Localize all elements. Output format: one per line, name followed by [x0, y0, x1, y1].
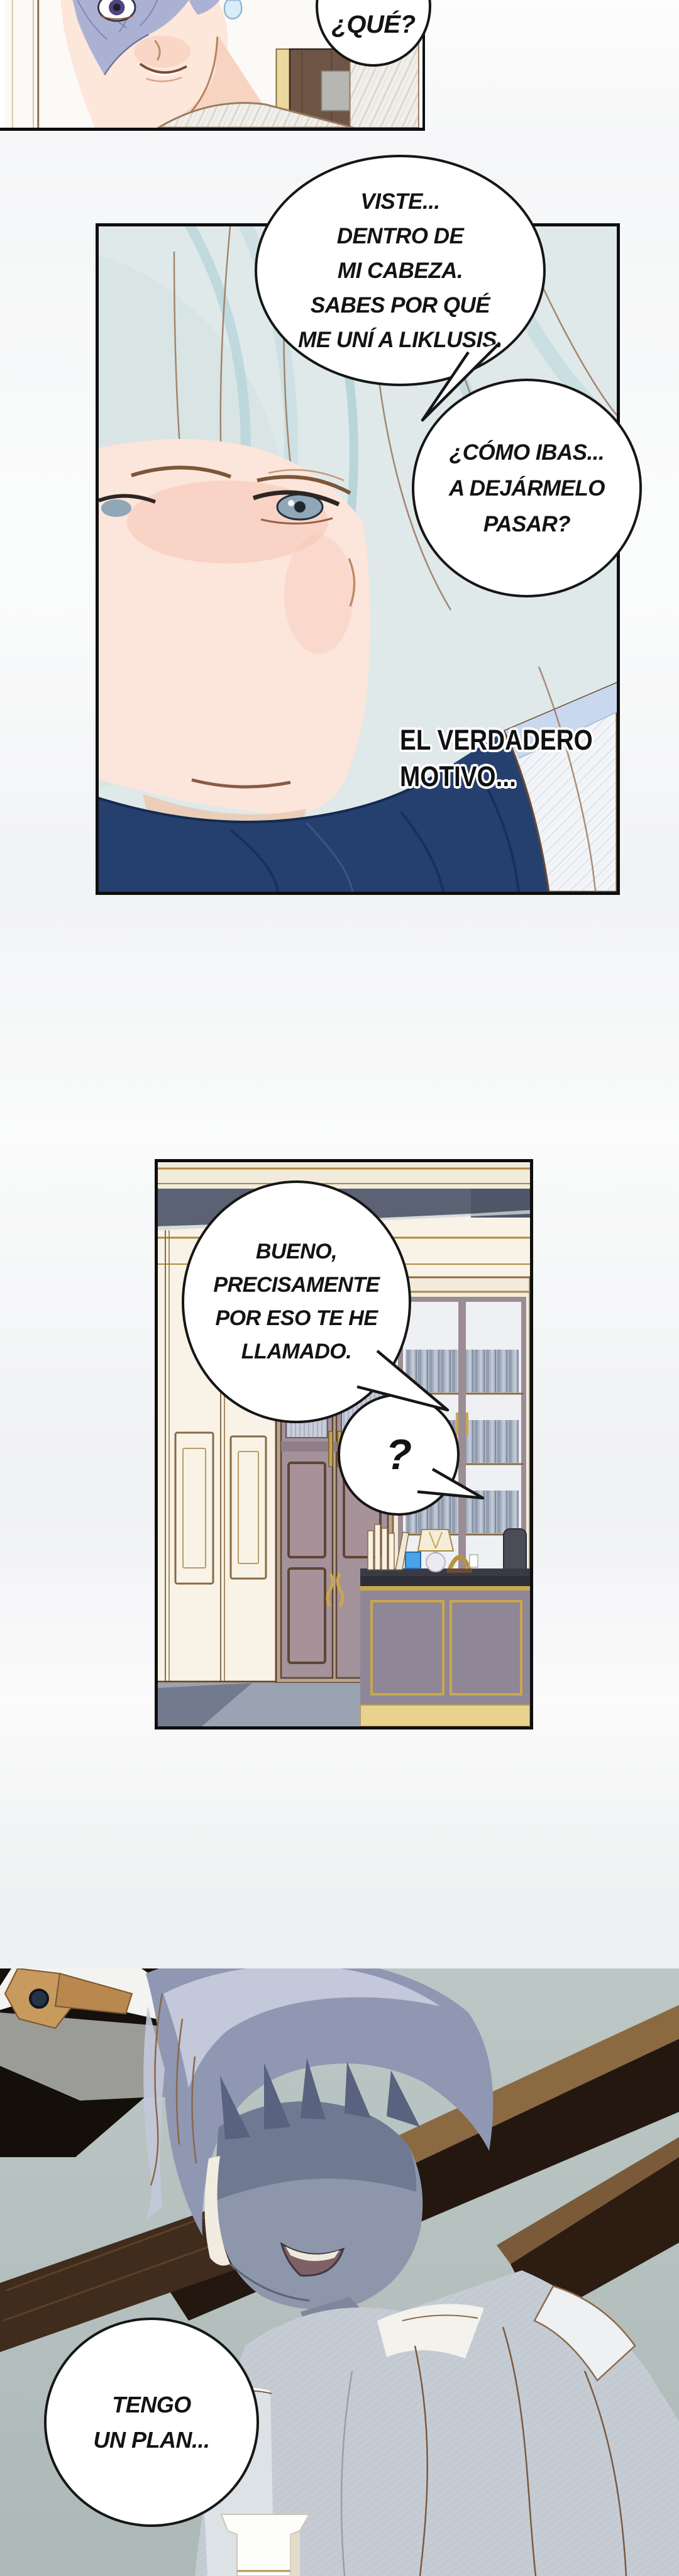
- caption-line: EL VERDADERO: [400, 722, 568, 758]
- speech-bubble-viste: VISTE... DENTRO DE MI CABEZA. SABES POR …: [255, 155, 546, 386]
- speech-bubble-plan: TENGO UN PLAN...: [44, 2318, 259, 2527]
- bubble-line: VISTE...: [360, 184, 439, 219]
- caption-line: MOTIVO...: [400, 758, 568, 795]
- speech-bubble-bueno: BUENO, PRECISAMENTE POR ESO TE HE LLAMAD…: [182, 1180, 411, 1423]
- bubble-line: UN PLAN...: [93, 2423, 209, 2458]
- bubble-line: ¿QUÉ?: [331, 10, 415, 39]
- bubble-line: SABES POR QUÉ: [311, 288, 490, 323]
- webtoon-page: ¿QUÉ? VISTE... DENTRO DE MI CABEZA. SABE…: [0, 0, 679, 2576]
- speech-bubble-question: ?: [338, 1394, 460, 1516]
- bubble-line: POR ESO TE HE: [216, 1302, 378, 1335]
- caption-el-verdadero-motivo: EL VERDADERO MOTIVO...: [400, 722, 568, 795]
- bubble-line: MI CABEZA.: [338, 253, 463, 288]
- bubble-line: TENGO: [112, 2387, 191, 2423]
- bubble-line: ME UNÍ A LIKLUSIS.: [298, 323, 502, 357]
- bubble-line: ?: [385, 1433, 411, 1476]
- bubble-line: PASAR?: [483, 506, 570, 542]
- bubble-line: LLAMADO.: [241, 1335, 351, 1368]
- bubble-line: ¿CÓMO IBAS...: [450, 435, 604, 470]
- bubble-line: A DEJÁRMELO: [449, 470, 605, 506]
- bubble-line: BUENO,: [256, 1235, 337, 1269]
- bubble-line: DENTRO DE: [337, 219, 464, 253]
- speech-bubble-como: ¿CÓMO IBAS... A DEJÁRMELO PASAR?: [412, 379, 642, 597]
- bubble-line: PRECISAMENTE: [213, 1269, 379, 1302]
